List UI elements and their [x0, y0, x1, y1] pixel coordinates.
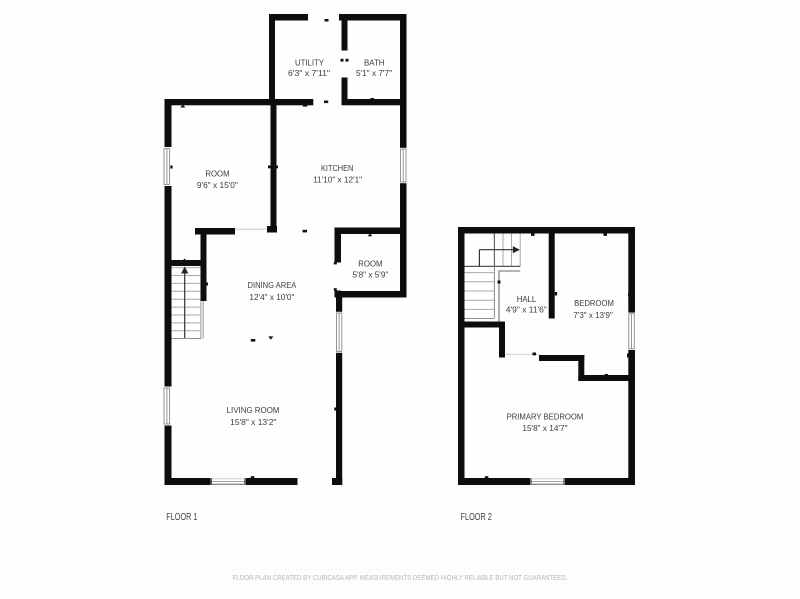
svg-text:UTILITY: UTILITY — [295, 57, 324, 67]
svg-text:HALL: HALL — [517, 294, 537, 304]
svg-text:DINING AREA: DINING AREA — [248, 280, 297, 290]
svg-text:FLOOR PLAN CREATED BY CUBICASA: FLOOR PLAN CREATED BY CUBICASA APP. MEAS… — [233, 575, 568, 582]
svg-text:7'3" x 13'9": 7'3" x 13'9" — [573, 310, 612, 320]
svg-text:FLOOR 2: FLOOR 2 — [461, 512, 492, 523]
svg-text:5'8" x 5'9": 5'8" x 5'9" — [353, 270, 389, 280]
svg-text:PRIMARY BEDROOM: PRIMARY BEDROOM — [507, 412, 584, 422]
svg-text:15'8" x 14'7": 15'8" x 14'7" — [522, 423, 567, 433]
svg-text:12'4" x 10'0": 12'4" x 10'0" — [249, 292, 294, 302]
svg-text:BEDROOM: BEDROOM — [574, 298, 614, 308]
svg-text:11'10" x 12'1": 11'10" x 12'1" — [313, 174, 362, 184]
svg-text:FLOOR 1: FLOOR 1 — [166, 512, 197, 523]
svg-text:4'9" x 11'6": 4'9" x 11'6" — [506, 305, 547, 315]
svg-text:5'1" x 7'7": 5'1" x 7'7" — [356, 68, 392, 78]
svg-text:BATH: BATH — [364, 57, 385, 67]
svg-text:15'8" x 13'2": 15'8" x 13'2" — [230, 417, 276, 427]
svg-text:ROOM: ROOM — [205, 168, 229, 178]
svg-text:LIVING ROOM: LIVING ROOM — [227, 405, 280, 415]
svg-text:6'3" x 7'11": 6'3" x 7'11" — [288, 68, 330, 78]
svg-text:9'6" x 15'0": 9'6" x 15'0" — [197, 180, 238, 190]
svg-text:KITCHEN: KITCHEN — [321, 163, 353, 173]
svg-text:ROOM: ROOM — [358, 259, 382, 269]
